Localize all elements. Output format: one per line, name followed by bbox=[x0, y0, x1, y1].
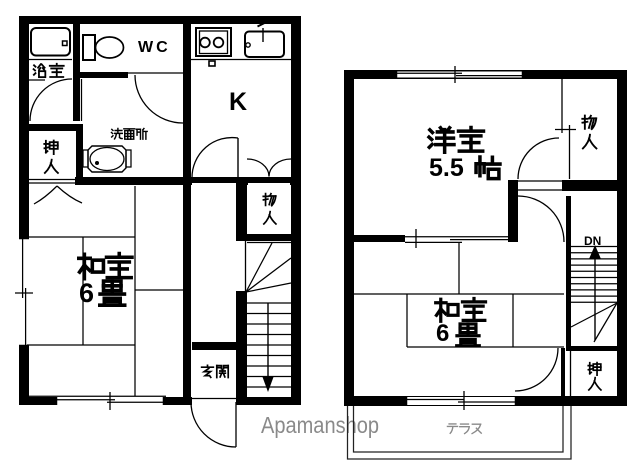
svg-text:6: 6 bbox=[436, 320, 449, 347]
svg-text:5.5: 5.5 bbox=[429, 154, 464, 182]
svg-text:6: 6 bbox=[79, 278, 94, 308]
svg-text:WC: WC bbox=[138, 39, 171, 56]
svg-text:Apamanshop: Apamanshop bbox=[261, 412, 379, 438]
svg-text:K: K bbox=[229, 88, 247, 116]
svg-text:DN: DN bbox=[584, 234, 601, 248]
